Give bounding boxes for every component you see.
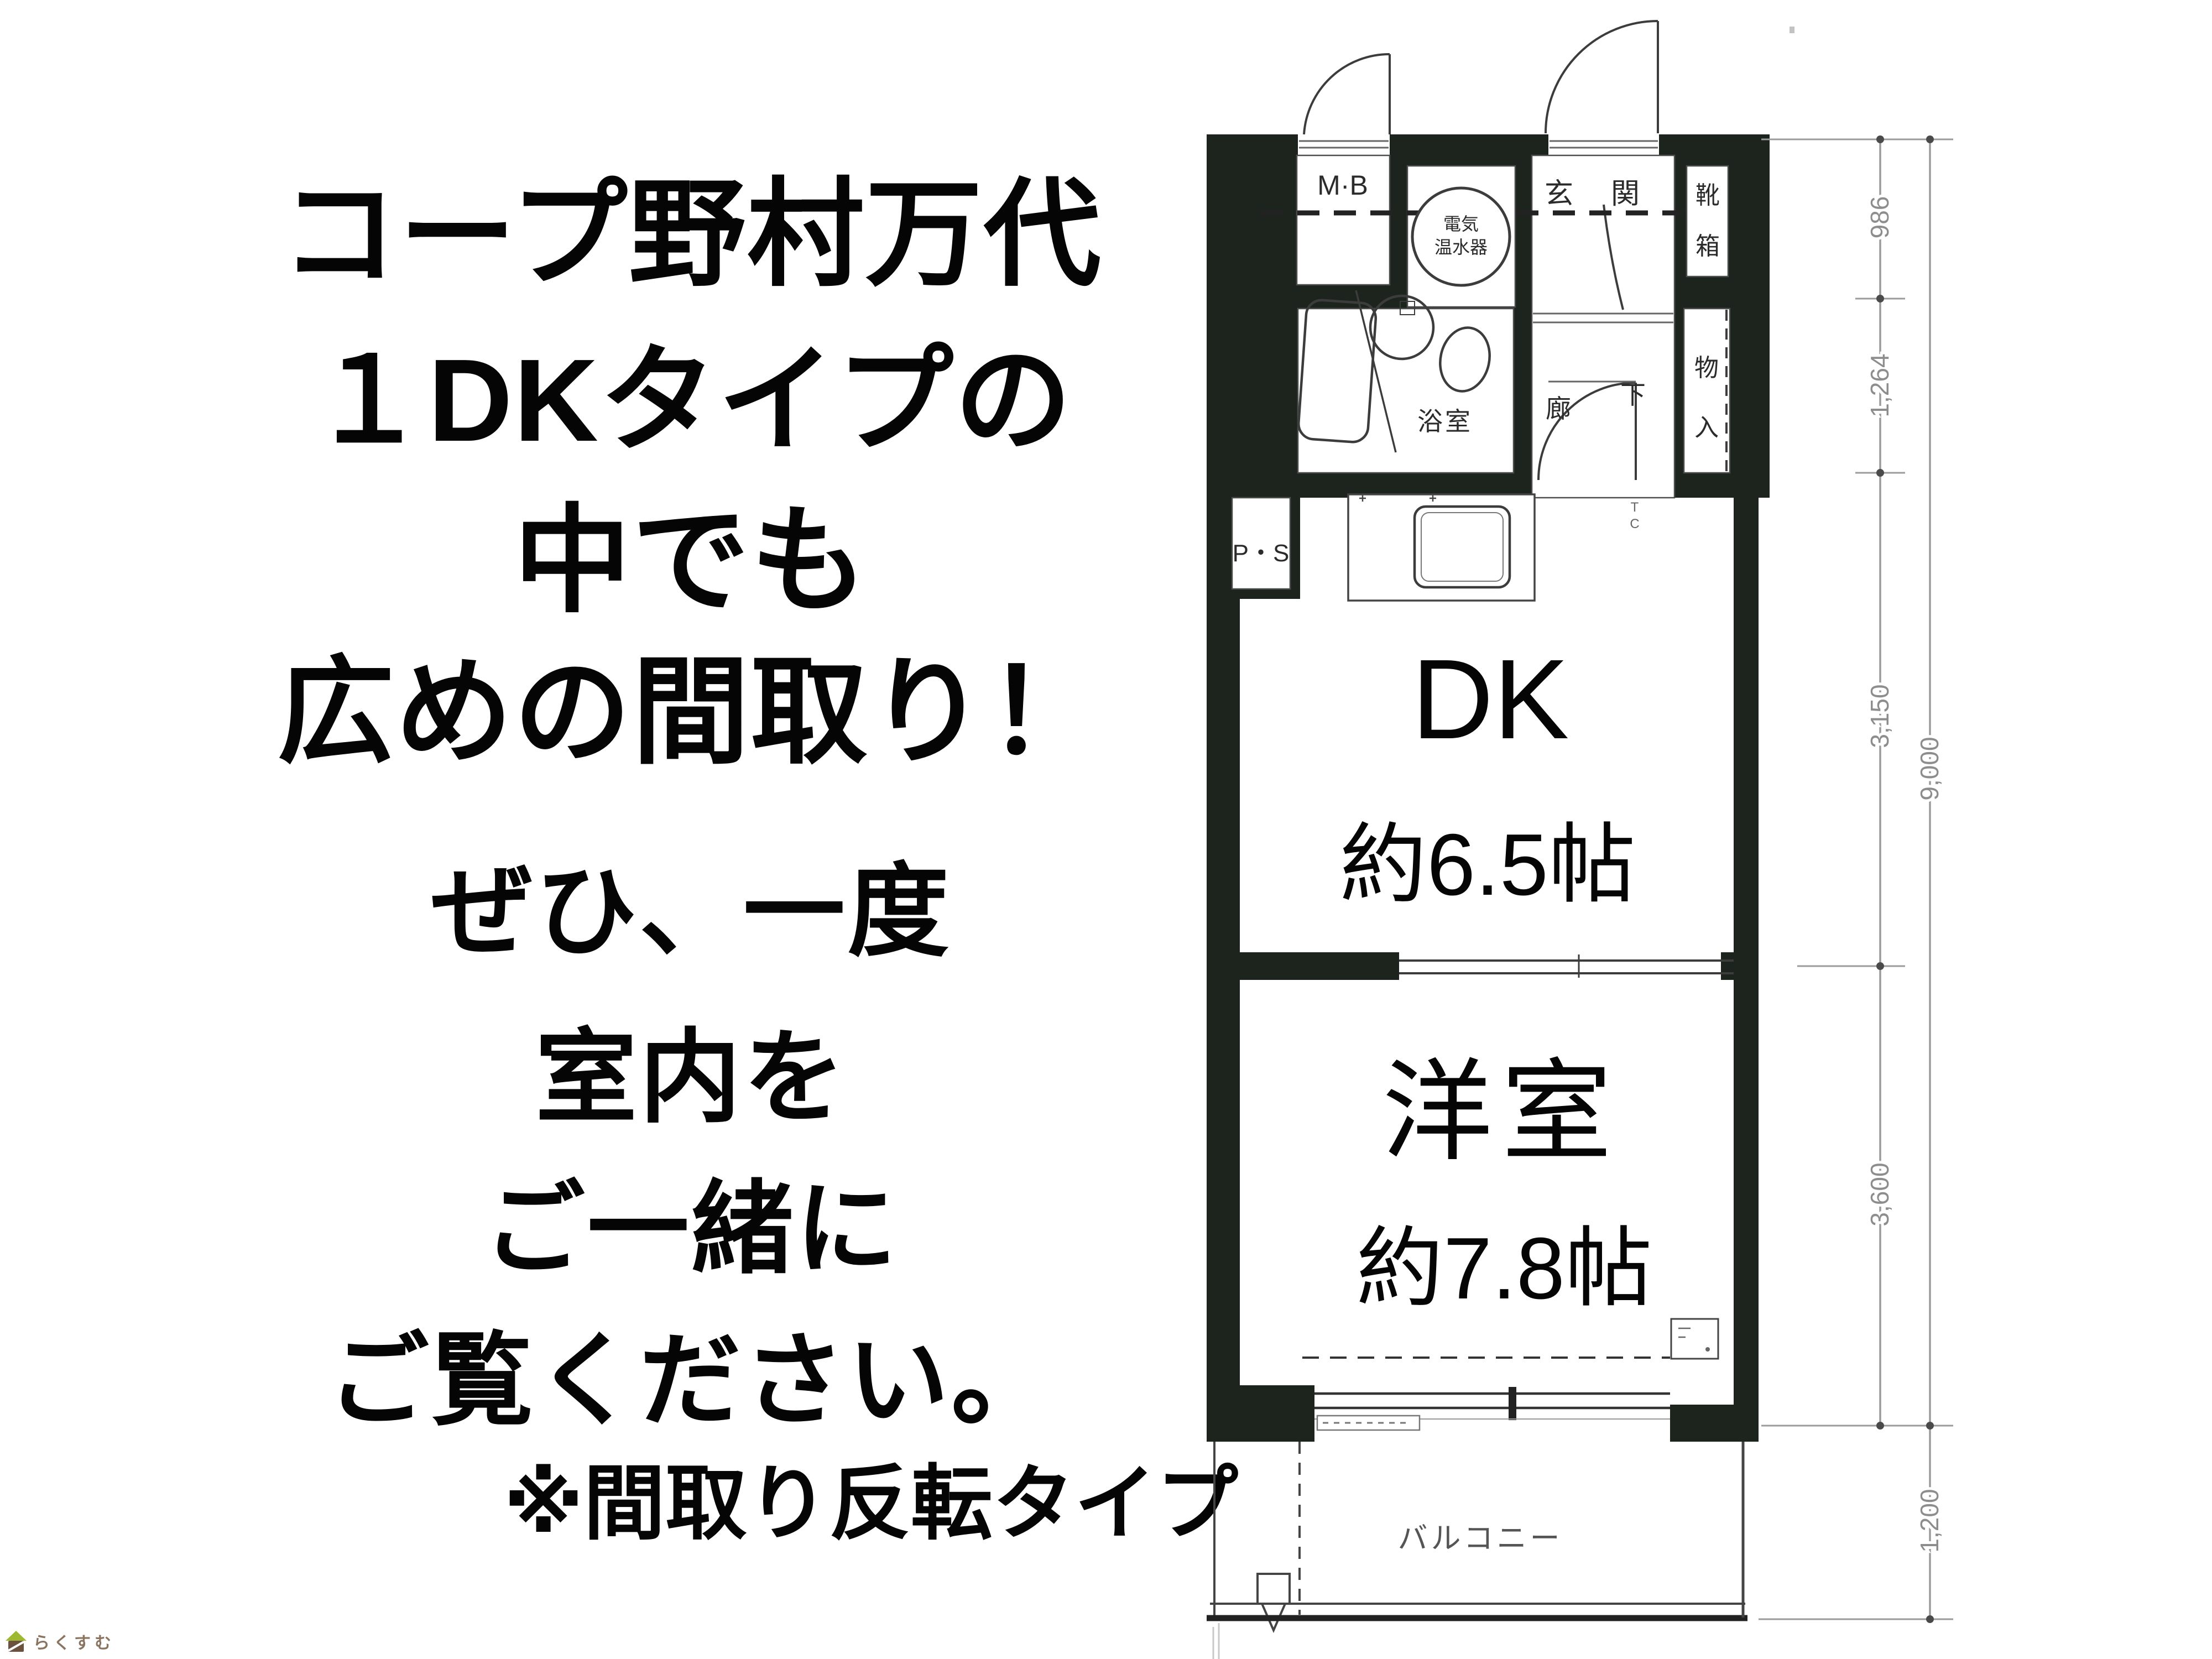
water-heater-label-1: 電気: [1443, 214, 1479, 234]
pipe-space-label: P・S: [1233, 540, 1290, 567]
balcony-label: バルコニー: [1398, 1522, 1563, 1555]
storage-room: [1684, 309, 1730, 473]
storage-label-2: 入: [1694, 414, 1719, 441]
dim-3600: 3,600: [1865, 1162, 1894, 1226]
storage-label-1: 物: [1694, 354, 1719, 382]
shoe-cabinet-label-1: 靴: [1695, 182, 1720, 209]
meter-box-door-opening: [1298, 133, 1390, 156]
meter-box-label: M·B: [1317, 170, 1368, 201]
scan-speck: [1790, 27, 1794, 33]
corridor-label-1: 廊: [1546, 394, 1571, 423]
window-wall: [1314, 1387, 1670, 1430]
kitchen-counter: [1348, 494, 1535, 601]
corner-box-dot: [1705, 1347, 1710, 1352]
house-icon: [4, 1629, 28, 1653]
entrance-door-opening: [1548, 133, 1659, 156]
western-room-label: 洋室: [1382, 1051, 1621, 1174]
shoe-cabinet-label-2: 箱: [1695, 233, 1720, 260]
note-mirrored-type: ※間取り反転タイプ: [476, 1437, 1266, 1556]
water-heater-circle: [1412, 188, 1510, 285]
toilet-cabinet-label-1: T: [1631, 500, 1639, 515]
dim-9000: 9,000: [1915, 737, 1944, 800]
dk-size-label: 約6.5帖: [1339, 816, 1636, 914]
house-roof: [6, 1631, 27, 1641]
dim-3150: 3,150: [1865, 684, 1894, 748]
room-divider-door: [1399, 954, 1734, 978]
bathroom-label: 浴室: [1417, 407, 1473, 436]
floor-plan: 電気 温水器: [1161, 0, 1991, 1659]
kitchen-sink-outer: [1415, 507, 1510, 587]
water-heater-label-2: 温水器: [1434, 237, 1488, 257]
corridor-label-2: 下: [1620, 380, 1646, 409]
window-mullion: [1509, 1387, 1516, 1420]
western-room-size-label: 約7.8帖: [1356, 1220, 1652, 1317]
balcony-hatch: [1258, 1574, 1290, 1604]
headline-line-2: １DKタイプの: [149, 342, 1233, 459]
dim-1200: 1,200: [1915, 1489, 1944, 1552]
entrance-door-arc: [1546, 21, 1658, 133]
headline-line-3: 中でも: [149, 502, 1233, 619]
headline-line-1: コープ野村万代: [149, 176, 1233, 293]
dimension-lines: [1759, 139, 1953, 1619]
entrance-label: 玄 関: [1545, 178, 1644, 210]
message-line-1: ぜひ、一度: [149, 860, 1233, 962]
dim-1264: 1,264: [1865, 353, 1894, 417]
message-line-4: ご覧ください。: [149, 1329, 1233, 1431]
message-line-2: 室内を: [149, 1026, 1233, 1128]
site-logo: らくすむ: [4, 1629, 115, 1653]
dk-label: DK: [1412, 636, 1569, 763]
meter-box-door-arc: [1304, 54, 1390, 134]
western-room-corner-box: [1671, 1319, 1718, 1359]
logo-text: らくすむ: [33, 1629, 115, 1653]
dim-986: 986: [1865, 196, 1894, 239]
scan-streaks: [1213, 1623, 1219, 1659]
headline-line-4: 広めの間取り！: [149, 654, 1233, 771]
message-line-3: ご一緒に: [149, 1178, 1233, 1280]
toilet-cabinet-label-2: C: [1630, 517, 1639, 531]
window-glass-lines: [1314, 1394, 1670, 1408]
flyer-page: { "left_panel": { "headline": ["コープ野村万代"…: [0, 0, 2212, 1659]
